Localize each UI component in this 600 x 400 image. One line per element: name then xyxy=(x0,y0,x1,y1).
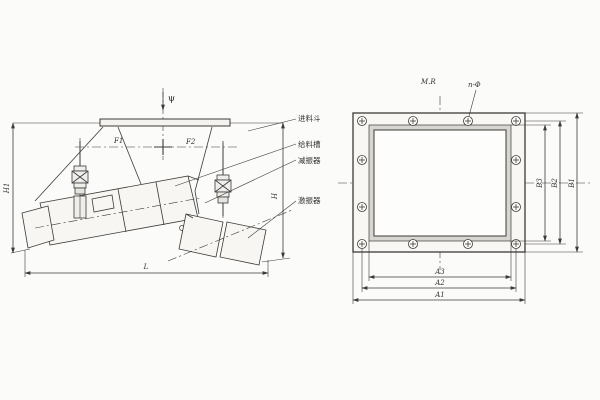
part-label-hopper: 进料斗 xyxy=(298,113,321,123)
bolt-hole xyxy=(512,156,521,165)
dim-b3-label: B3 xyxy=(536,178,544,189)
feeder-trough xyxy=(22,176,200,248)
feeder-side-view: ψ F1 F2 xyxy=(3,88,296,277)
discharge-spout xyxy=(22,206,54,248)
part-labels: 进料斗 给料槽 减振器 激振器 xyxy=(298,113,321,205)
dim-a3-label: A3 xyxy=(434,268,445,276)
bolt-hole xyxy=(464,240,473,249)
hole-leader-line xyxy=(469,90,476,116)
suspension-spring-front xyxy=(72,138,88,218)
bolt-hole xyxy=(409,240,418,249)
bolt-hole xyxy=(512,203,521,212)
dim-h1-label: H1 xyxy=(3,183,11,195)
dim-a2-label: A2 xyxy=(434,279,445,287)
height-dimension-right: H xyxy=(262,123,290,262)
part-label-exciter: 激振器 xyxy=(298,195,321,205)
bolt-hole xyxy=(358,240,367,249)
bolt-hole xyxy=(358,117,367,126)
angle-label: ψ xyxy=(168,94,175,104)
part-label-damper: 减振器 xyxy=(298,155,321,165)
flange-top-label: M.R xyxy=(420,78,436,86)
dim-h-label: H xyxy=(271,192,279,200)
dim-a1-label: A1 xyxy=(434,291,445,299)
bolt-hole xyxy=(358,156,367,165)
dim-f1-label: F1 xyxy=(113,137,123,145)
drawing-canvas: ψ F1 F2 xyxy=(0,0,600,400)
suspension-spring-rear xyxy=(215,143,231,218)
part-label-trough: 给料槽 xyxy=(298,139,321,149)
bolt-hole xyxy=(409,117,418,126)
dim-f2-label: F2 xyxy=(185,138,196,146)
mounting-plate xyxy=(100,119,230,126)
dim-l-label: L xyxy=(143,263,149,271)
dim-b1-label: B1 xyxy=(568,178,576,189)
technical-drawing: ψ F1 F2 xyxy=(0,0,600,400)
flange-opening xyxy=(374,130,506,236)
hole-count-label: n-Φ xyxy=(468,81,481,89)
bolt-hole xyxy=(464,117,473,126)
hanger-spacing-dimension: F1 F2 xyxy=(75,137,237,155)
bolt-hole xyxy=(512,117,521,126)
flange-view: M.R n-Φ B3 B2 B1 A3 A2 xyxy=(338,78,593,304)
bolt-hole xyxy=(358,203,367,212)
dim-b2-label: B2 xyxy=(551,178,559,189)
